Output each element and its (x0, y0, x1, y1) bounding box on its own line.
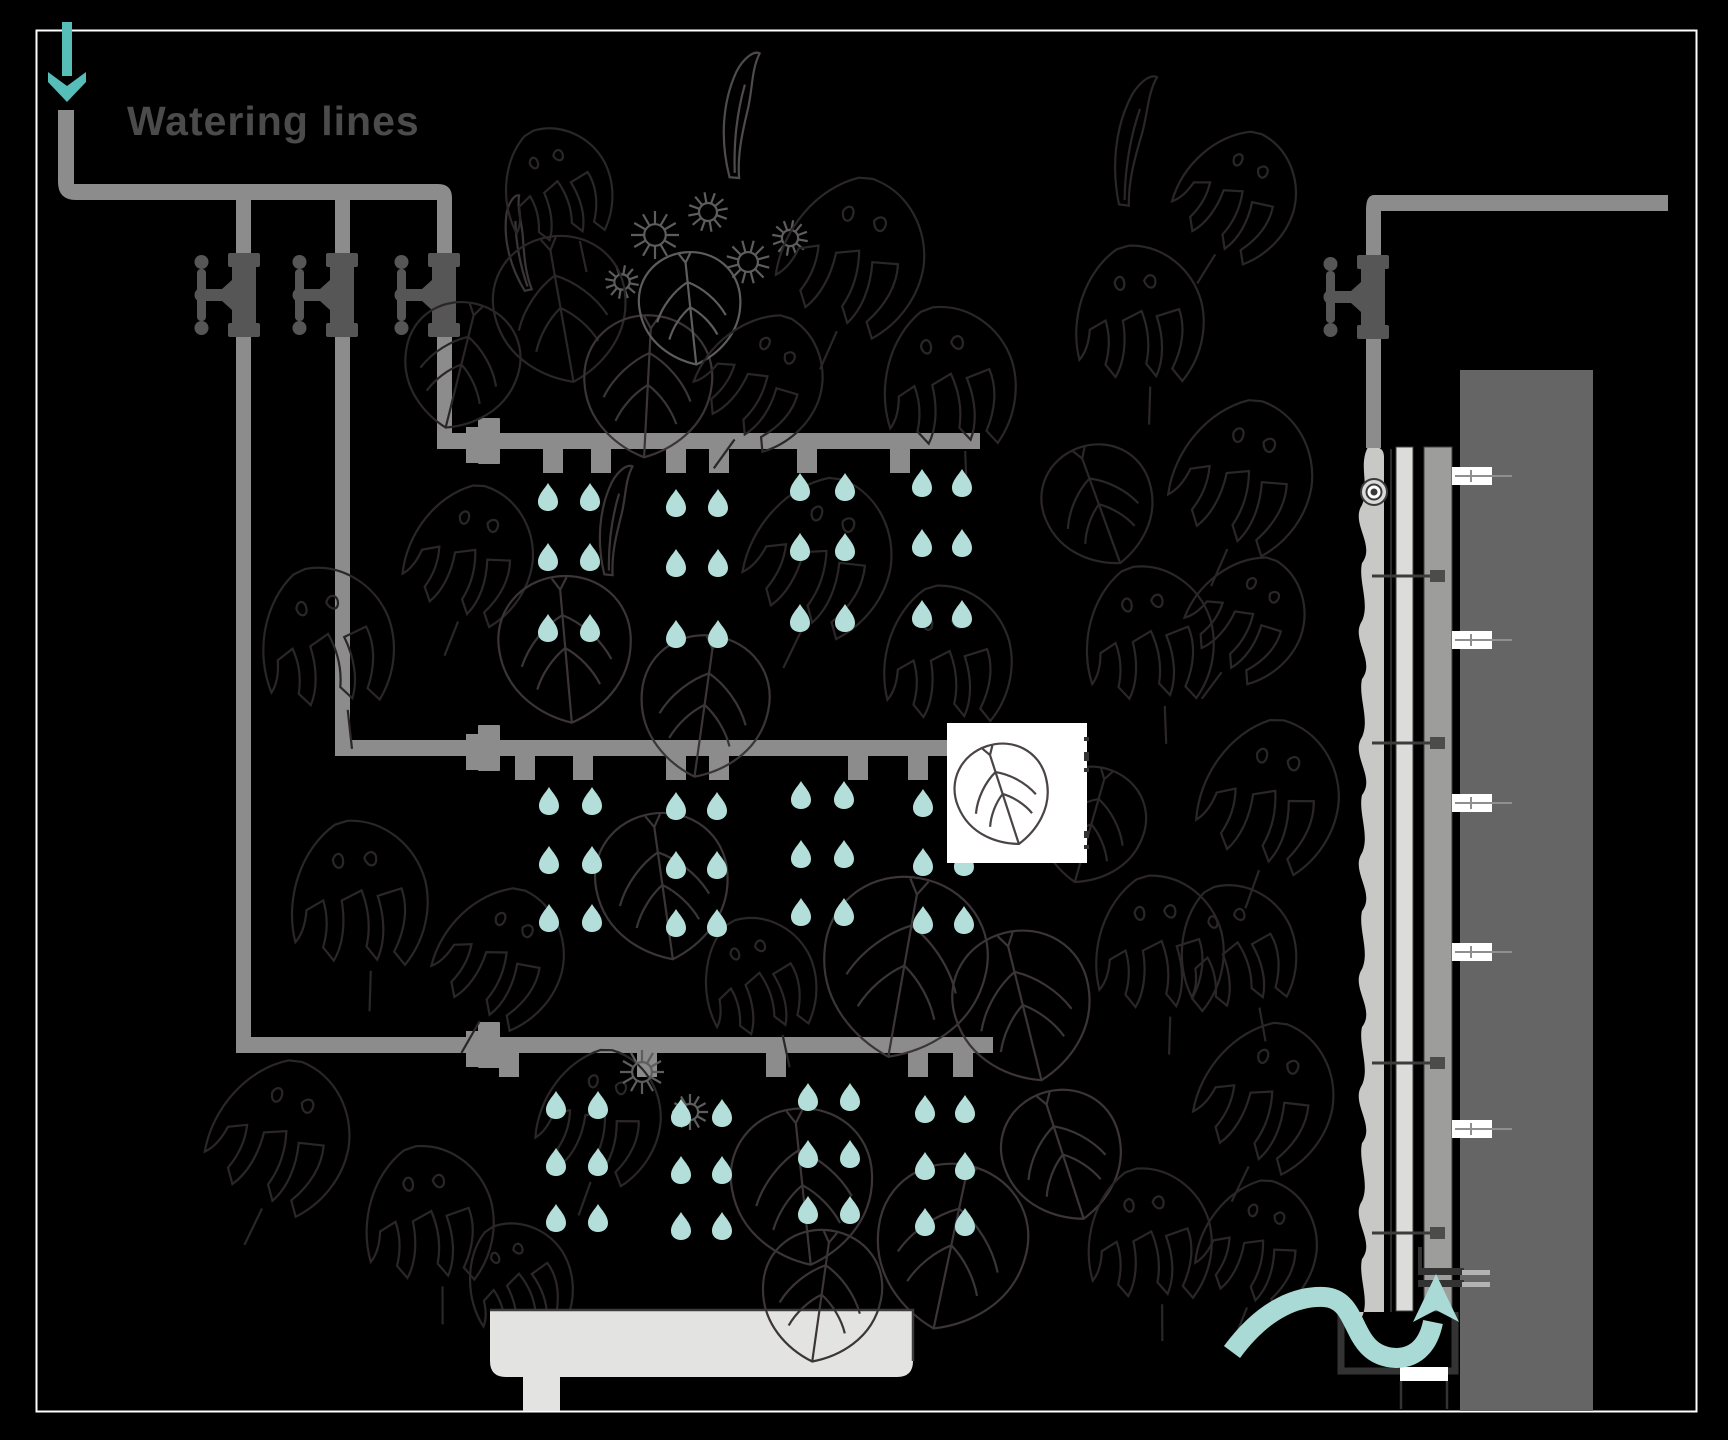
drip-line (236, 1022, 993, 1077)
water-drop-icon (955, 1095, 975, 1123)
water-drop-icon (915, 1152, 935, 1180)
water-drop-icon (912, 469, 932, 497)
water-drop-icon (912, 529, 932, 557)
plant-leaf-illustration (680, 898, 848, 1087)
water-drop-icon (798, 1083, 818, 1111)
plant-leaf-illustration (587, 804, 739, 968)
diagram-title: Watering lines (127, 98, 420, 145)
water-drop-icon (798, 1196, 818, 1224)
water-drop-icon (712, 1156, 732, 1184)
drip-line (335, 725, 960, 780)
plant-leaf-illustration (390, 475, 545, 668)
tap-valve-icon (195, 253, 261, 337)
drain-outlet (1400, 1367, 1448, 1381)
drip-emitter-tab (666, 449, 686, 473)
plant-leaf-illustration (721, 235, 775, 289)
plant-leaf-illustration (481, 109, 642, 291)
drip-emitter-tab (890, 449, 910, 473)
water-drop-icon (538, 614, 558, 642)
plant-leaf-illustration (1151, 386, 1327, 602)
water-drop-icon (588, 1148, 608, 1176)
water-drop-icon (707, 792, 727, 820)
water-drop-icon (840, 1196, 860, 1224)
water-drop-icon (915, 1208, 935, 1236)
plant-leaf-illustration (1061, 235, 1221, 435)
drip-emitter-tab (797, 449, 817, 473)
plant-leaf-illustration (634, 247, 747, 370)
foliage-front (185, 50, 1350, 1380)
watering-pipes (58, 110, 993, 1077)
water-drop-icon (666, 620, 686, 648)
water-drop-icon (913, 906, 933, 934)
plant-leaf-illustration (769, 217, 811, 259)
water-drop-icon (666, 909, 686, 937)
water-drop-icon (915, 1095, 935, 1123)
plant-leaf-illustration (986, 1075, 1140, 1238)
plant-leaf-illustration (1081, 865, 1241, 1065)
water-drop-icon (538, 483, 558, 511)
plant-leaf-illustration (1026, 429, 1172, 582)
water-drop-icon (582, 787, 602, 815)
water-drop-icon (546, 1204, 566, 1232)
water-drop-icon (954, 906, 974, 934)
water-drop-icon (834, 898, 854, 926)
plant-leaf-illustration (483, 226, 639, 394)
water-drop-icon (588, 1204, 608, 1232)
water-drop-icon (580, 543, 600, 571)
water-drop-icon (952, 600, 972, 628)
water-drop-icon (912, 600, 932, 628)
plant-leaf-illustration (1148, 113, 1314, 306)
water-drop-icon (708, 549, 728, 577)
plant-leaf-illustration (595, 463, 632, 576)
drip-emitter-tab (591, 449, 611, 473)
water-drop-icon (666, 792, 686, 820)
plant-leaf-illustration (758, 163, 939, 386)
drip-emitter-tab (953, 1053, 973, 1077)
white-callout-square (943, 723, 1089, 863)
plant-leaf-illustration (682, 186, 733, 237)
water-drop-icon (791, 781, 811, 809)
water-drop-icon (840, 1140, 860, 1168)
plant-leaf-illustration (1156, 536, 1325, 726)
water-drop-icon (791, 840, 811, 868)
drip-emitter-tab (499, 1053, 519, 1077)
plant-leaf-illustration (1108, 72, 1157, 207)
water-drop-icon (835, 533, 855, 561)
wall-section-side-view (1324, 195, 1669, 1411)
water-drop-icon (952, 469, 972, 497)
water-drop-icon (539, 846, 559, 874)
plant-leaf-illustration (349, 1133, 514, 1336)
plant-leaf-illustration (497, 195, 538, 292)
water-drop-icon (546, 1148, 566, 1176)
diagram-stage: Watering lines (0, 0, 1728, 1440)
plant-leaf-illustration (724, 1101, 881, 1272)
drip-emitter-tab (848, 756, 868, 780)
water-drop-icon (790, 604, 810, 632)
drip-emitter-tab (908, 1053, 928, 1077)
drip-emitter-tab (543, 449, 563, 473)
plant-leaf-illustration (719, 50, 759, 178)
plant-leaf-illustration (1185, 710, 1349, 919)
plant-leaf-illustration (493, 570, 638, 728)
water-drop-icon (712, 1212, 732, 1240)
water-drop-icon (707, 909, 727, 937)
water-drop-icon (834, 840, 854, 868)
down-arrow-icon (48, 22, 86, 102)
water-drop-icon (582, 846, 602, 874)
water-drop-icon (538, 543, 558, 571)
drip-emitter-tab (766, 1053, 786, 1077)
water-drop-icon (671, 1212, 691, 1240)
water-drop-icon (791, 898, 811, 926)
water-drop-icon (708, 489, 728, 517)
plant-leaf-illustration (185, 1044, 366, 1263)
drip-emitter-tab (573, 756, 593, 780)
water-drop-icon (708, 620, 728, 648)
drip-line (437, 418, 980, 473)
water-drop-icon (671, 1156, 691, 1184)
water-drop-icon (790, 533, 810, 561)
water-drop-icon (666, 489, 686, 517)
water-drop-icon (588, 1091, 608, 1119)
drip-emitter-tab (515, 756, 535, 780)
plant-leaf-illustration (390, 290, 532, 441)
plant-leaf-illustration (238, 549, 424, 767)
water-drop-icon (913, 848, 933, 876)
plant-leaf-illustration (1174, 1007, 1350, 1220)
plant-trough (490, 1222, 913, 1411)
water-drop-icon (539, 904, 559, 932)
water-drop-icon (840, 1083, 860, 1111)
water-drop-icon (835, 604, 855, 632)
plant-leaf-illustration (276, 809, 446, 1022)
flow-arrows (48, 22, 1459, 1358)
water-drop-icon (712, 1099, 732, 1127)
water-drop-icon (834, 781, 854, 809)
water-drop-icon (798, 1140, 818, 1168)
water-drop-icon (952, 529, 972, 557)
plant-leaf-illustration (631, 211, 679, 259)
tap-valve-icon (293, 253, 359, 337)
water-drop-icon (580, 483, 600, 511)
plant-leaf-illustration (1072, 1156, 1232, 1352)
water-drop-icon (835, 473, 855, 501)
drip-emitter-tab (908, 756, 928, 780)
water-drop-icon (913, 789, 933, 817)
water-drop-icon (666, 851, 686, 879)
diagram-canvas (0, 0, 1728, 1440)
tap-valve-icon (395, 253, 461, 337)
water-drop-icon (790, 473, 810, 501)
water-drop-icon (539, 787, 559, 815)
water-drop-icon (666, 549, 686, 577)
plant-leaf-illustration (631, 627, 778, 786)
water-drop-icon (955, 1152, 975, 1180)
water-drop-icon (582, 904, 602, 932)
water-drop-icon (580, 614, 600, 642)
